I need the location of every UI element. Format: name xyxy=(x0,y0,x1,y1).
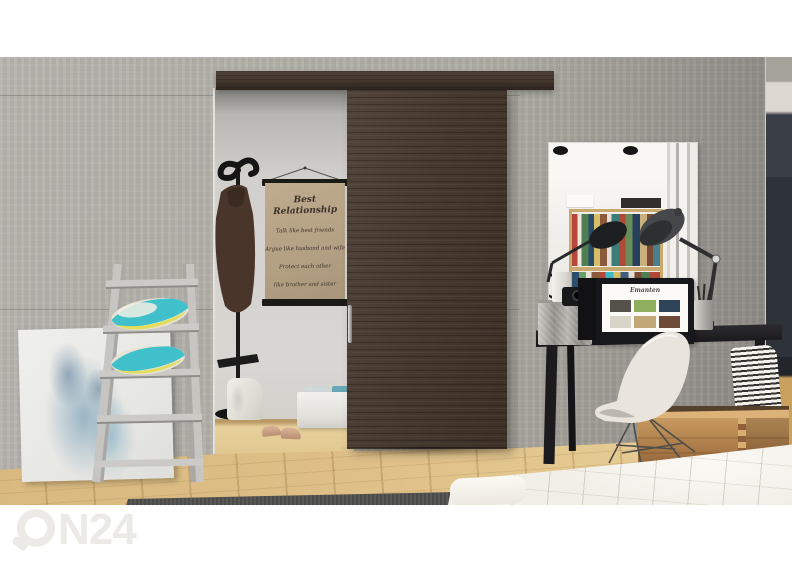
thumbnail xyxy=(659,300,680,312)
poster-line-3: Protect each other xyxy=(265,262,345,271)
coat-collar xyxy=(227,187,245,207)
wall-poster: Best Relationship Talk like best friends… xyxy=(262,165,348,313)
white-bag xyxy=(227,378,263,420)
magnifier-icon xyxy=(14,509,56,551)
product-photo-frame: Best Relationship Talk like best friends… xyxy=(0,0,792,566)
poster-line-1: Talk like best friends xyxy=(265,226,345,235)
sliding-door-rail xyxy=(216,71,554,90)
coat-stand-hooks xyxy=(221,160,257,178)
thumbnail xyxy=(610,300,631,312)
ceiling-spotlight-1 xyxy=(553,146,568,155)
ladder-shelf xyxy=(78,262,206,484)
door-shadow xyxy=(340,447,520,456)
shell-chair xyxy=(583,325,718,467)
ceiling-spotlight-2 xyxy=(623,146,638,155)
poster-line-2: Argue like husband and wife xyxy=(265,244,345,253)
room-scene: Best Relationship Talk like best friends… xyxy=(0,57,792,505)
poster-title: Best Relationship xyxy=(265,194,345,219)
poster-line-4: like brother and sister xyxy=(265,280,345,289)
poster-bottom-bar xyxy=(262,299,348,306)
laptop-thumbnails-row1 xyxy=(610,300,680,312)
shoe-left xyxy=(262,425,282,437)
door-handle xyxy=(348,305,352,343)
poster-paper: Best Relationship Talk like best friends… xyxy=(265,183,345,302)
chair-wire-base xyxy=(609,419,695,464)
watermark: N24 xyxy=(14,509,136,551)
watermark-text: N24 xyxy=(58,509,136,551)
thumbnail xyxy=(634,300,655,312)
lamp-head xyxy=(633,201,691,253)
bed-duvet-corner xyxy=(449,475,526,505)
sliding-door xyxy=(347,90,507,449)
laptop-site-logo: Emanten xyxy=(602,287,688,295)
